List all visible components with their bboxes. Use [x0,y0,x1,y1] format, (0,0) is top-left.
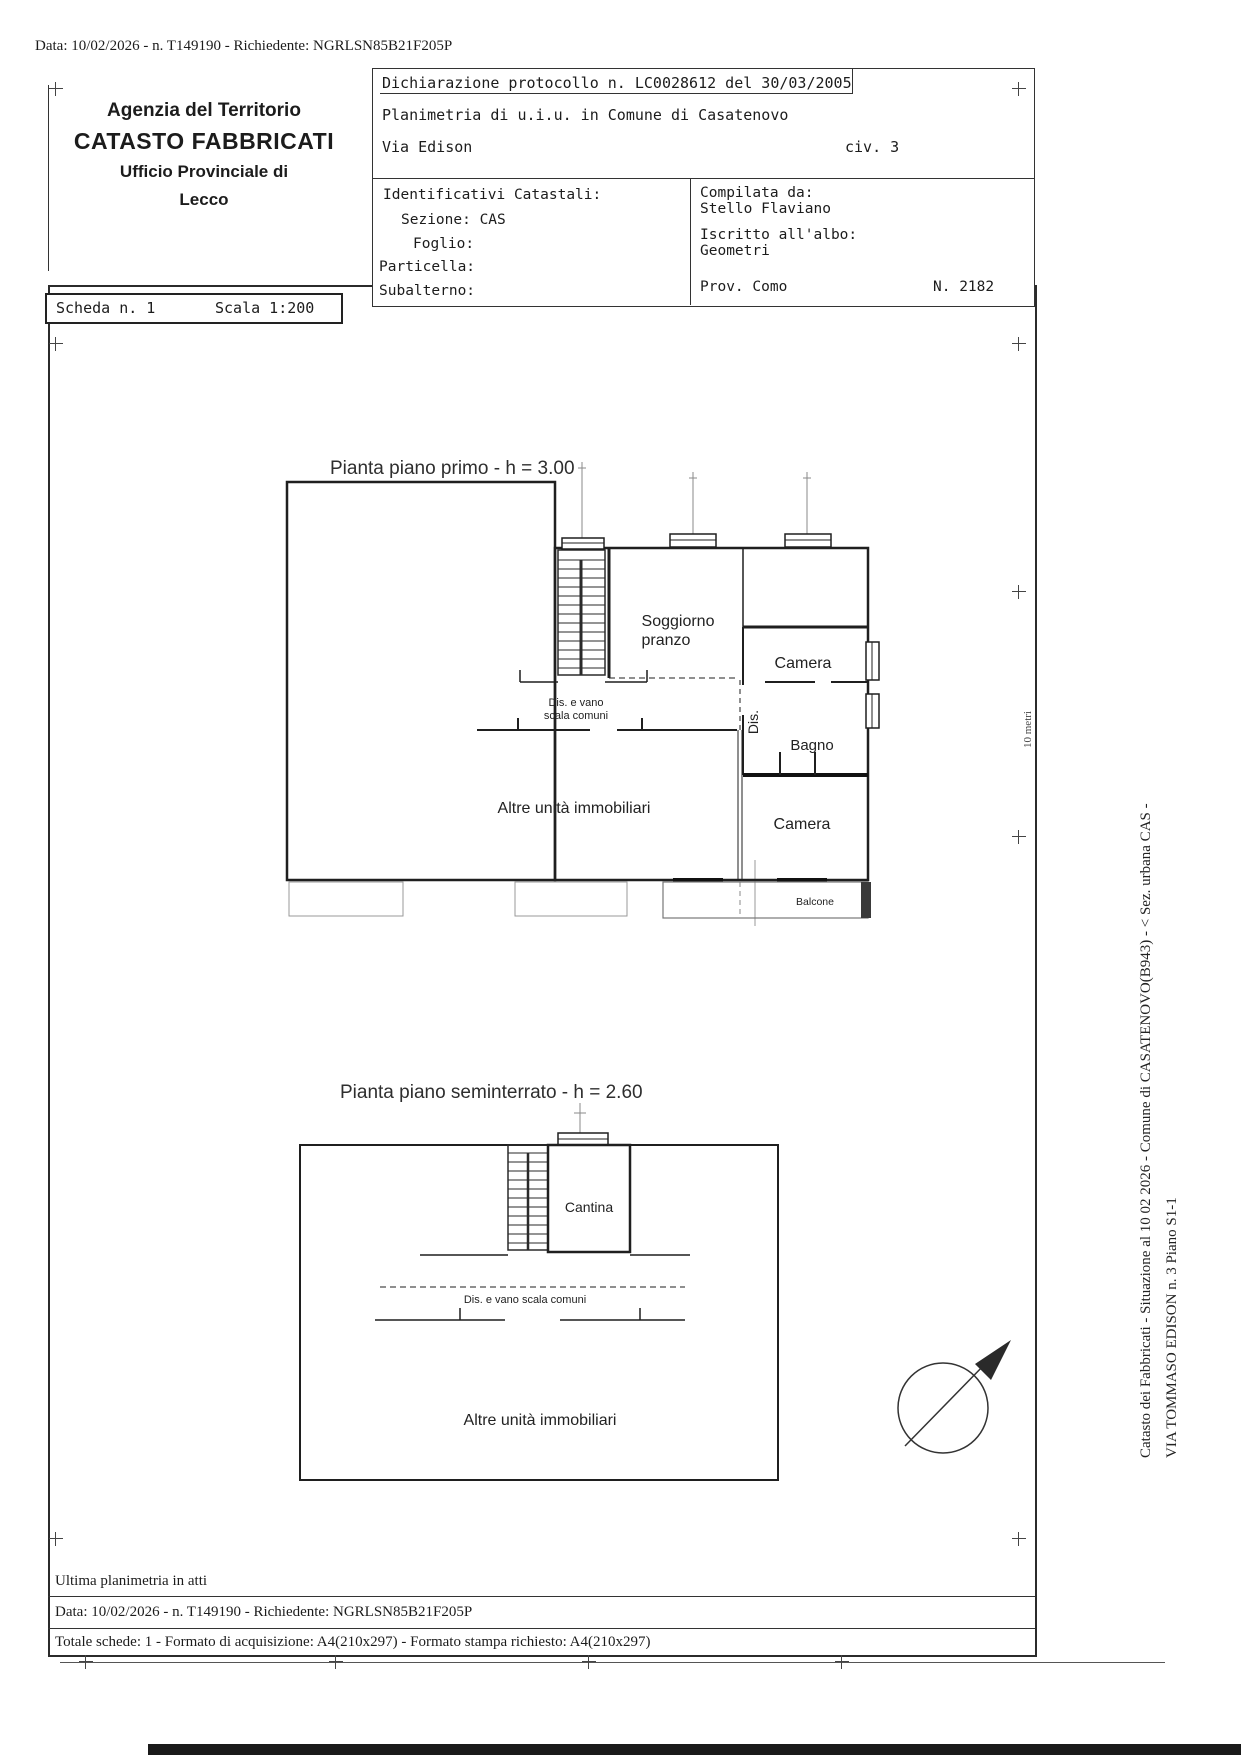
compiler-province: Prov. Como [700,279,787,295]
agency-line-1: Agenzia del Territorio [50,100,358,122]
footer-divider-2 [48,1628,1035,1629]
label-altre-unita: Altre unità immobiliari [498,800,651,817]
cadastral-document-page: Data: 10/02/2026 - n. T149190 - Richiede… [0,0,1241,1755]
section-lines-basement [574,1103,586,1133]
label-cantina: Cantina [565,1199,613,1215]
balcony-terraces [289,882,871,918]
label-balcone: Balcone [796,896,834,908]
scan-edge-artifact [148,1744,1241,1755]
crop-mark [1012,82,1026,96]
staircase-basement [508,1145,548,1250]
civic-number: civ. 3 [845,138,899,156]
cadastral-foglio: Foglio: [413,236,474,252]
protocol-underline [380,93,852,94]
crop-mark [835,1655,849,1669]
agency-header: Agenzia del Territorio CATASTO FABBRICAT… [50,100,358,210]
crop-mark [1012,337,1026,351]
side-note-address: VIA TOMMASO EDISON n. 3 Piano S1-1 [1164,1197,1181,1458]
outer-walls-basement [300,1145,778,1480]
declaration-box-divider-h [372,178,1034,179]
cadastral-subalterno: Subalterno: [379,283,475,299]
agency-line-4: Lecco [50,190,358,210]
scheda-scale: Scala 1:200 [215,299,314,317]
agency-line-3: Ufficio Provinciale di [50,162,358,182]
floor-plan-basement: Cantina Dis. e vano scala comuni Altre u… [290,1095,790,1495]
agency-line-2: CATASTO FABBRICATI [50,128,358,155]
section-lines [578,462,811,926]
footer-data-line: Data: 10/02/2026 - n. T149190 - Richiede… [55,1604,472,1621]
side-note-catasto: Catasto dei Fabbricati - Situazione al 1… [1138,803,1155,1458]
label-camera-bottom: Camera [774,816,831,833]
crop-mark [329,1655,343,1669]
label-dis: Dis. [745,710,761,734]
label-soggiorno-2: pranzo [642,632,691,649]
north-arrow-compass [875,1330,1025,1480]
footer-divider-1 [48,1596,1035,1597]
crop-mark [1012,585,1026,599]
crop-mark [49,337,63,351]
protocol-end-tick [852,69,853,94]
cadastral-ids-title: Identificativi Catastali: [383,187,601,203]
north-arrow-head [975,1340,1011,1380]
footer-ultima: Ultima planimetria in atti [55,1573,207,1590]
label-vano-2: scala comuni [544,710,608,722]
compiler-register-label: Iscritto all'albo: [700,227,857,243]
scheda-number: Scheda n. 1 [56,299,155,317]
cadastral-sezione: Sezione: CAS [401,212,506,228]
crop-mark [582,1655,596,1669]
compiler-name: Stello Flaviano [700,201,831,217]
floor-plan-first: Soggiorno pranzo Camera Dis. Bagno Camer… [275,430,895,930]
label-altre-unita-basement: Altre unità immobiliari [464,1412,617,1429]
planimetria-line: Planimetria di u.i.u. in Comune di Casat… [382,106,788,124]
crop-mark [1012,1532,1026,1546]
street-line: Via Edison [382,138,472,156]
compiler-register: Geometri [700,243,770,259]
crop-mark [49,82,63,96]
request-header-line: Data: 10/02/2026 - n. T149190 - Richiede… [35,38,452,55]
window-basement [558,1133,608,1145]
footer-totale-line: Totale schede: 1 - Formato di acquisizio… [55,1634,651,1651]
header-left-rule [48,85,49,271]
cadastral-particella: Particella: [379,259,475,275]
compiler-number: N. 2182 [933,279,994,295]
label-bagno: Bagno [790,737,833,754]
scale-bar-label: 10 metri [1022,711,1034,748]
declaration-box-divider-v [690,178,691,305]
label-vano-basement: Dis. e vano scala comuni [464,1294,586,1306]
compiler-label: Compilata da: [700,185,814,201]
crop-mark [49,1532,63,1546]
bottom-crop-line [60,1662,1165,1663]
label-camera-top: Camera [775,655,832,672]
label-soggiorno-1: Soggiorno [642,613,715,630]
scheda-box: Scheda n. 1 Scala 1:200 [45,293,343,324]
crop-mark [1012,830,1026,844]
staircase [558,550,605,675]
protocol-line: Dichiarazione protocollo n. LC0028612 de… [382,74,852,92]
label-vano-1: Dis. e vano [548,697,603,709]
crop-mark [79,1655,93,1669]
